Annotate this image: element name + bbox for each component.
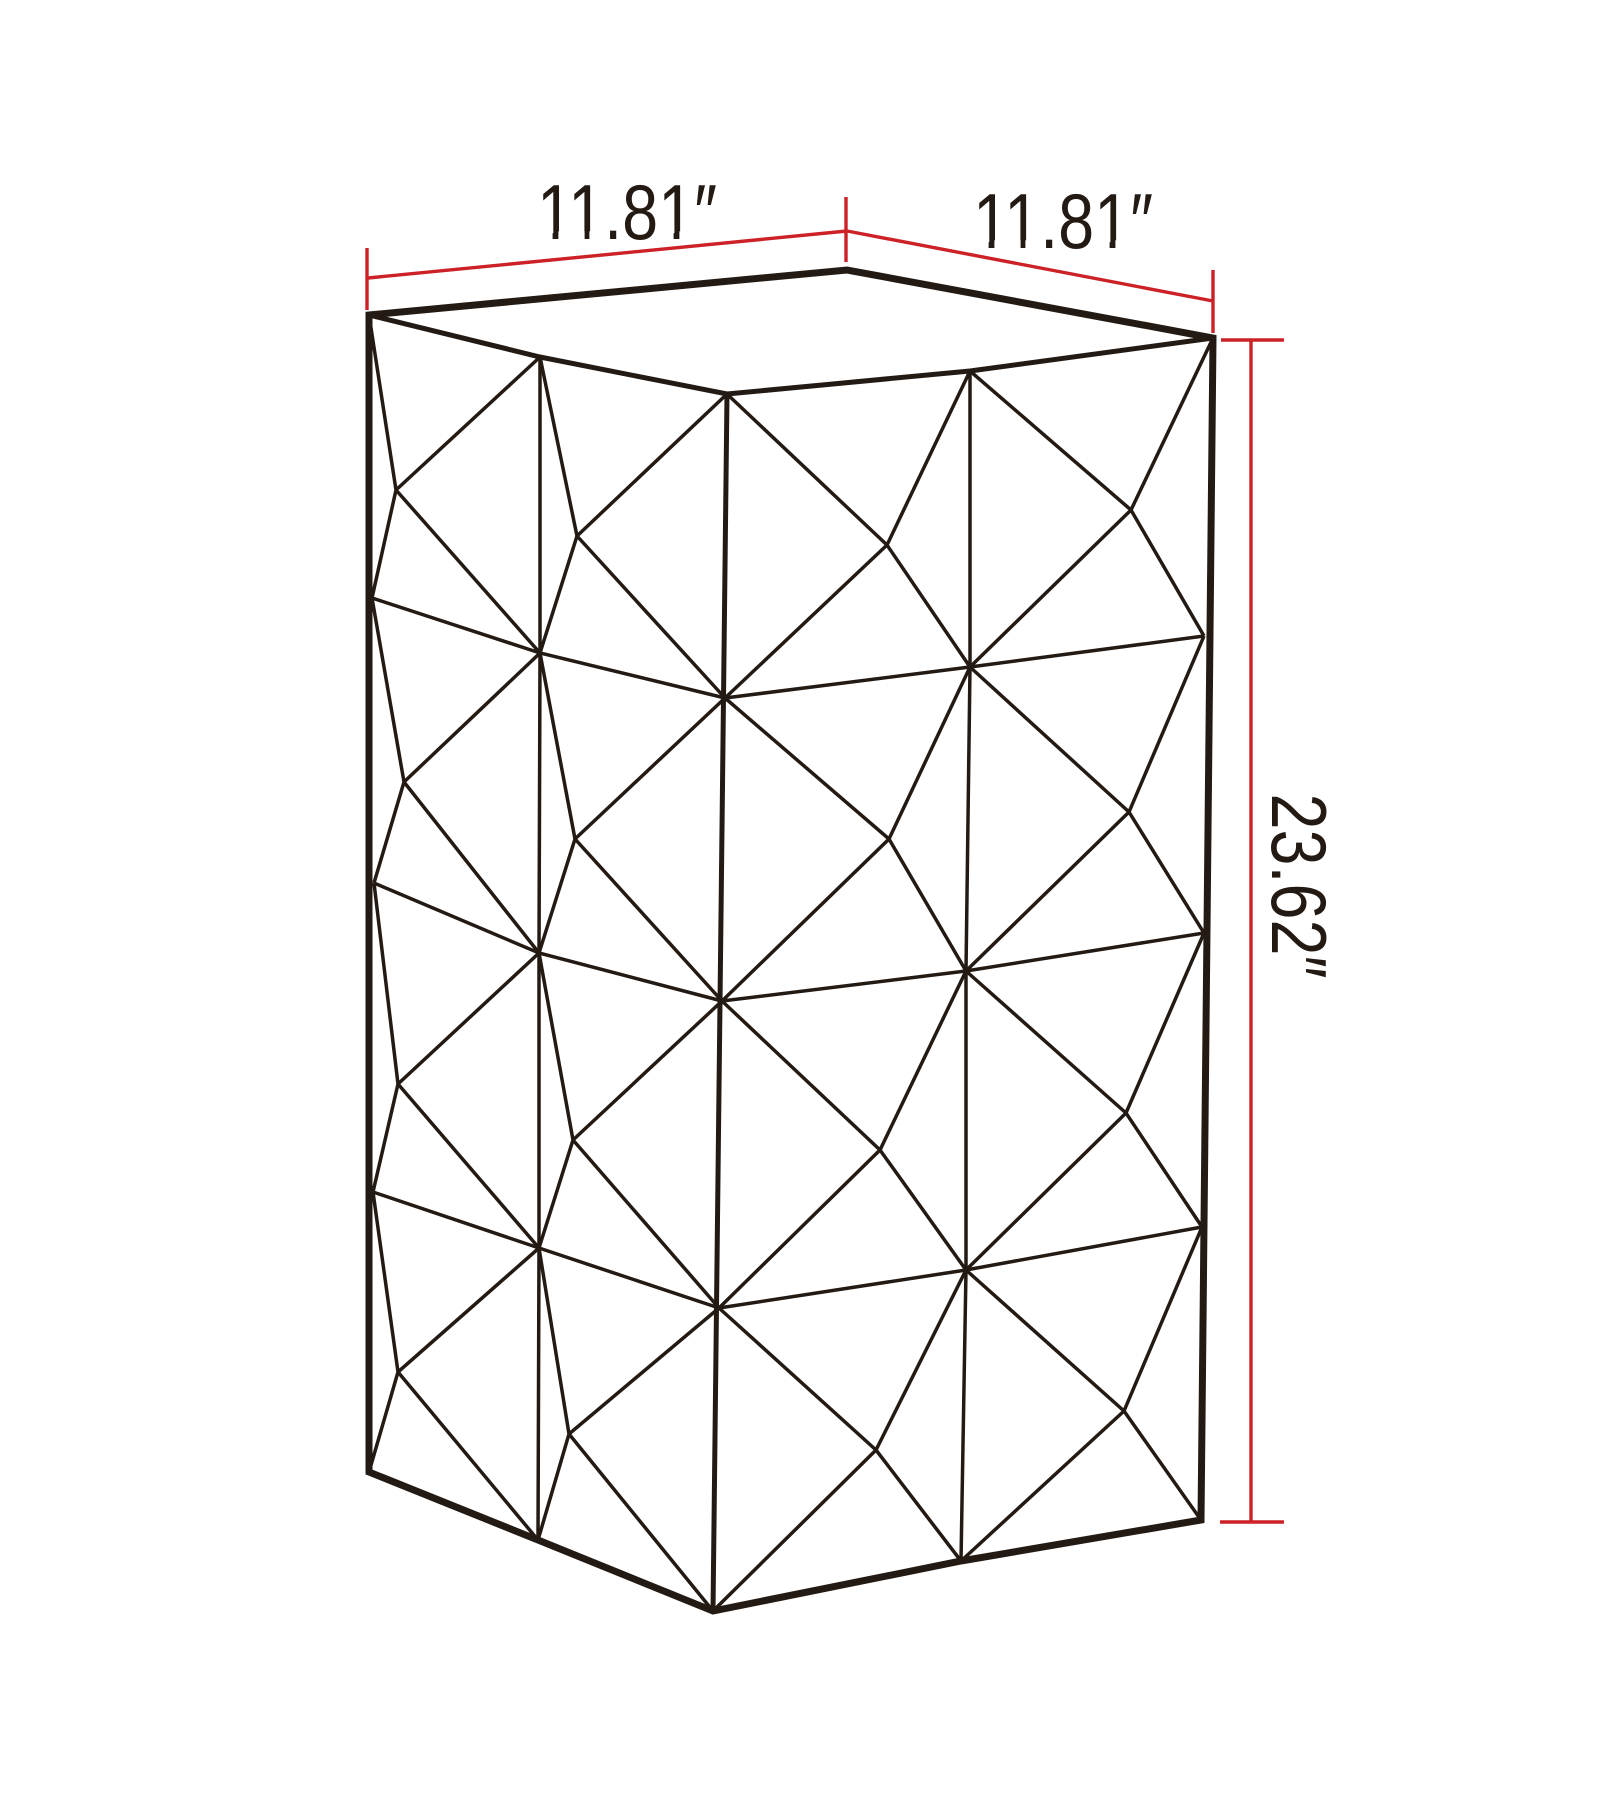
svg-text:23.62″: 23.62″ <box>1255 794 1342 979</box>
svg-text:11.81″: 11.81″ <box>973 178 1153 265</box>
svg-text:11.81″: 11.81″ <box>537 169 717 256</box>
